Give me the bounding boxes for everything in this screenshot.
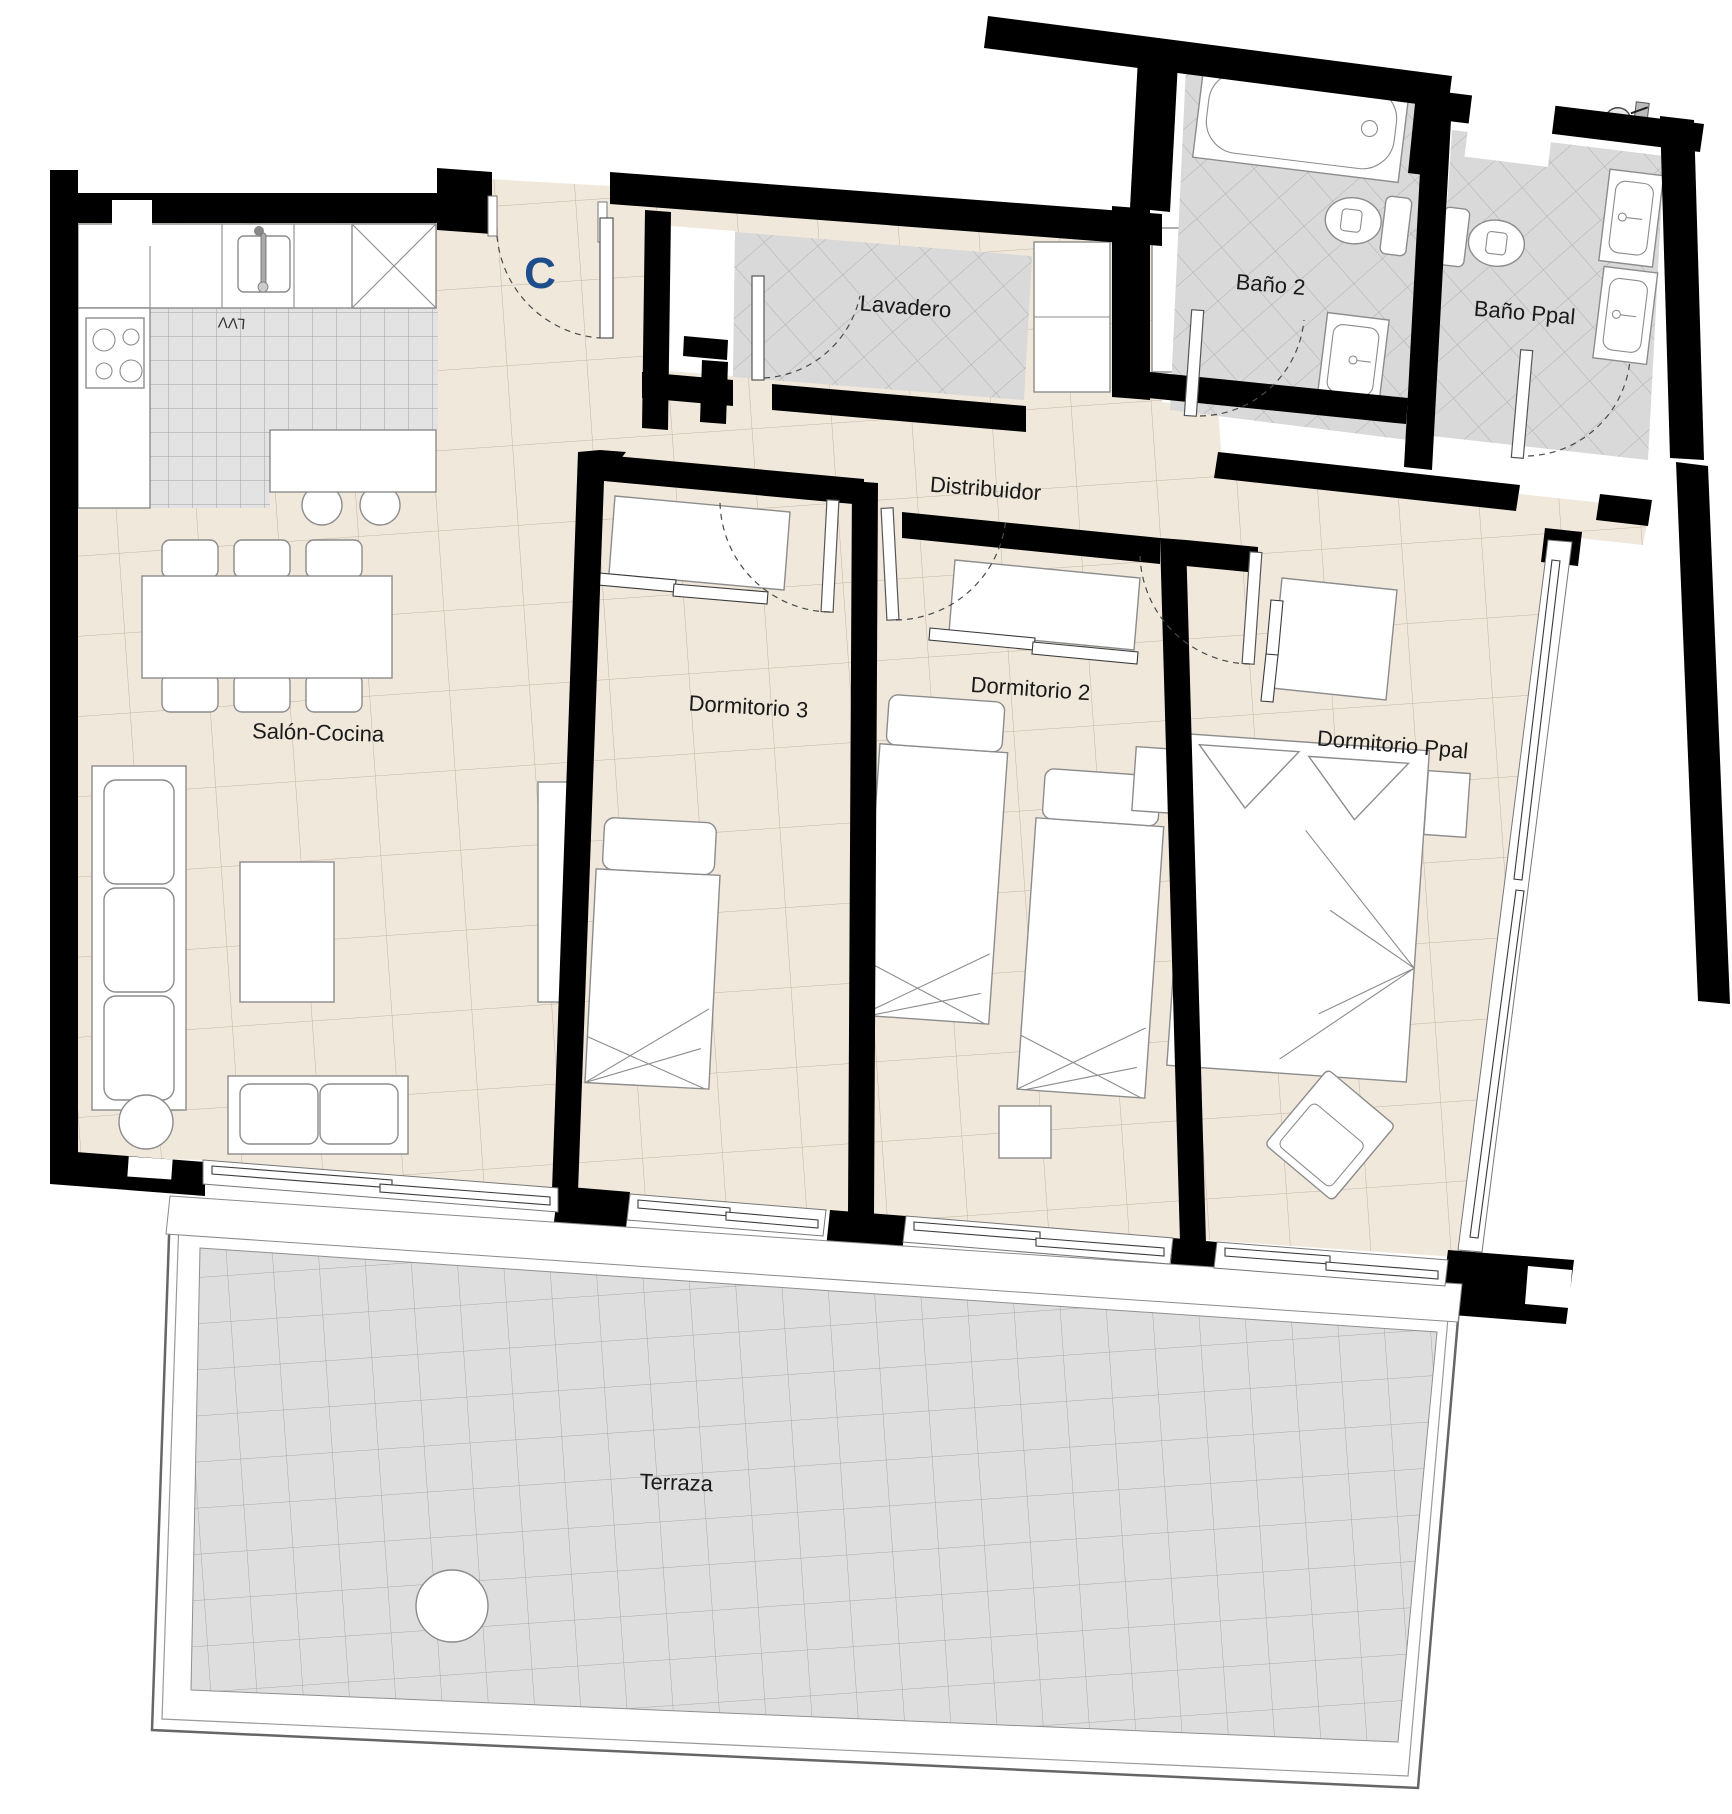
bed-dormitorio-3 — [585, 817, 723, 1089]
sofa-cushion — [104, 888, 174, 992]
stove — [86, 318, 144, 388]
room-label-salon: Salón-Cocina — [252, 718, 385, 746]
wall-niche — [1465, 95, 1556, 167]
bathroom-sink — [1599, 169, 1664, 267]
door-leaf — [752, 276, 764, 380]
terrace-tiles — [191, 1248, 1437, 1742]
side-table — [119, 1095, 173, 1149]
wall — [1676, 462, 1730, 1004]
faucet-icon — [261, 233, 266, 285]
room-label-terraza: Terraza — [639, 1469, 714, 1497]
wall-niche — [127, 1156, 172, 1179]
coffee-table — [240, 862, 334, 1002]
dining-chair — [306, 540, 362, 578]
sofa-cushion — [104, 996, 174, 1100]
wall — [1660, 116, 1704, 460]
window-pier — [554, 1186, 630, 1228]
wall — [1130, 58, 1178, 212]
dining-chair — [306, 674, 362, 712]
wall — [1112, 206, 1150, 400]
wall — [50, 193, 438, 223]
sofa-cushion — [104, 780, 174, 884]
kitchen — [78, 224, 438, 525]
dining-chair — [162, 540, 218, 578]
nightstand — [1424, 771, 1470, 838]
floor-plan-drawing: C Salón-Cocina Dormitorio 3 Dormitorio 2… — [0, 0, 1732, 1814]
faucet-icon — [258, 282, 268, 292]
dining-chair — [234, 674, 290, 712]
bed-b-dormitorio-2 — [1017, 768, 1167, 1098]
kitchen-island — [270, 430, 436, 492]
wall-niche — [1525, 1266, 1572, 1308]
appliance-label-dishwasher: LVV — [218, 313, 246, 332]
nightstand — [999, 1106, 1051, 1158]
closet-dormitorio-ppal — [1271, 578, 1397, 700]
wall — [50, 170, 78, 1170]
floor-plan: C Salón-Cocina Dormitorio 3 Dormitorio 2… — [0, 0, 1732, 1814]
wall-niche — [112, 200, 152, 246]
loveseat-cushion — [320, 1084, 398, 1144]
door-jamb — [488, 196, 497, 236]
dining-chair — [162, 674, 218, 712]
loveseat-cushion — [240, 1084, 318, 1144]
wall — [437, 168, 492, 234]
double-bed — [1167, 734, 1430, 1082]
bed-a-dormitorio-2 — [861, 694, 1011, 1024]
bathroom-sink — [1593, 266, 1658, 364]
dining-chair — [234, 540, 290, 578]
wall — [848, 481, 878, 1216]
terrace-table — [416, 1570, 488, 1642]
dining-table — [142, 576, 392, 678]
unit-letter: C — [524, 249, 556, 298]
door-leaf — [600, 218, 613, 338]
wall — [683, 336, 728, 360]
